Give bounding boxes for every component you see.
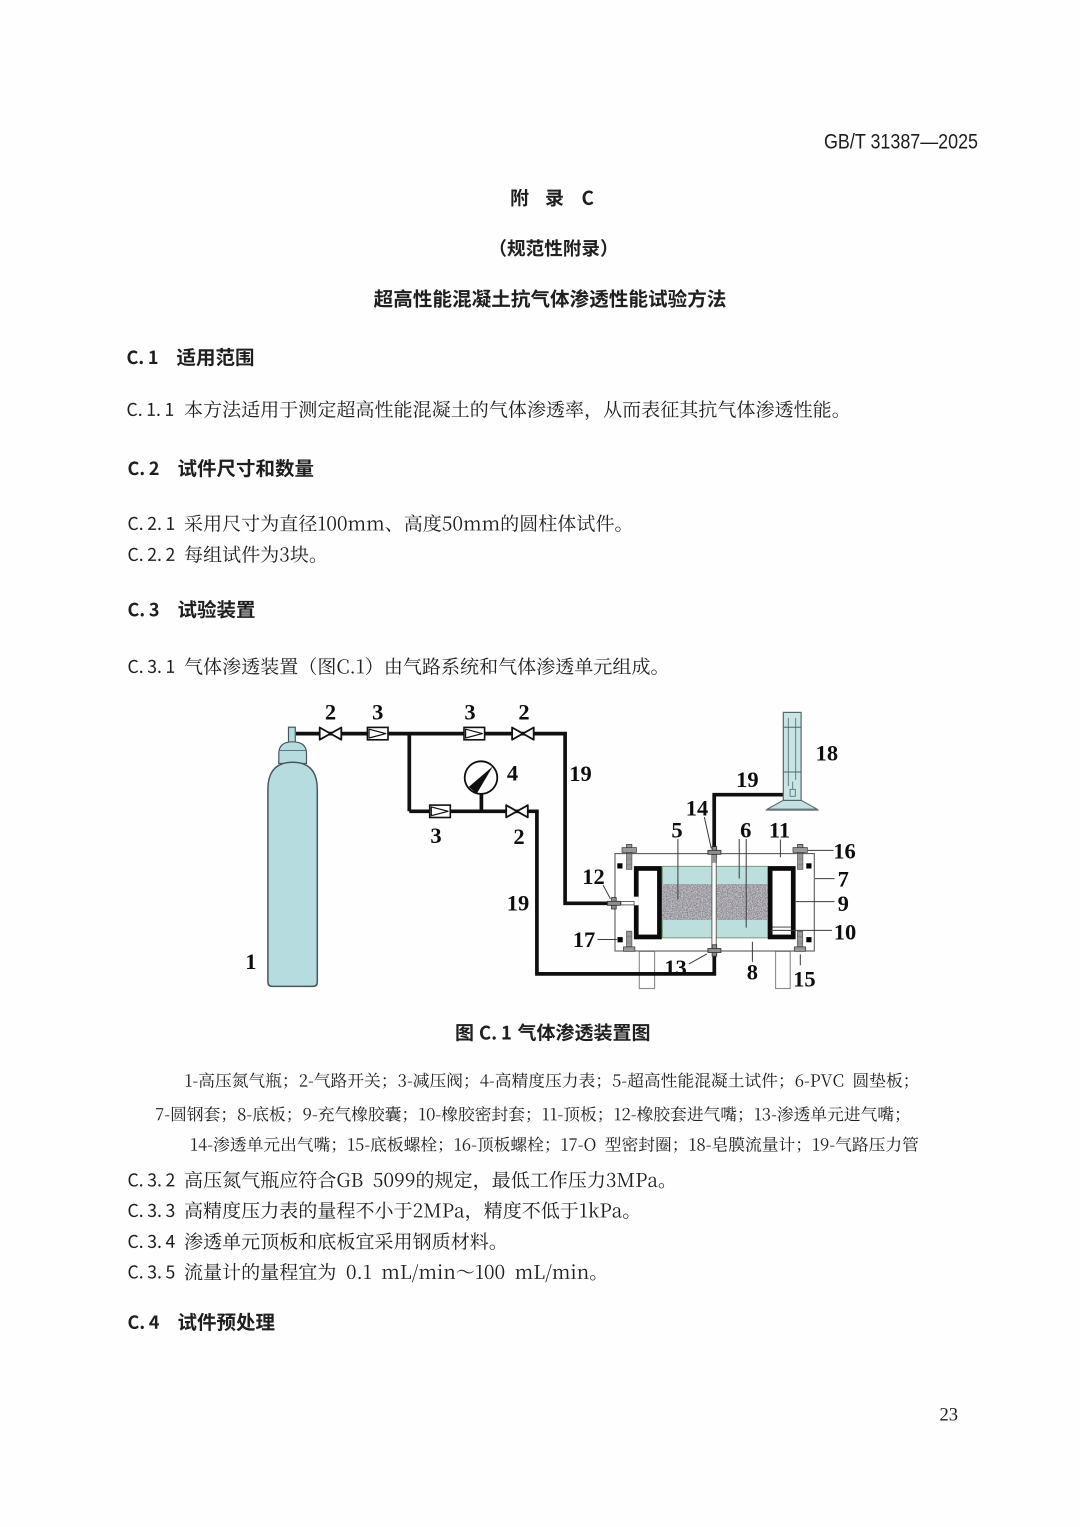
- svg-text:10: 10: [834, 920, 857, 945]
- svg-text:3: 3: [464, 700, 475, 725]
- svg-text:15: 15: [793, 967, 816, 992]
- svg-text:19: 19: [507, 891, 530, 916]
- svg-text:7: 7: [838, 867, 849, 892]
- svg-text:8: 8: [747, 960, 758, 985]
- svg-text:19: 19: [569, 761, 592, 786]
- svg-text:16: 16: [833, 839, 856, 864]
- svg-text:13: 13: [664, 955, 687, 980]
- svg-text:1: 1: [245, 949, 256, 974]
- svg-text:2: 2: [518, 700, 529, 725]
- svg-text:GB/T 31387—2025: GB/T 31387—2025: [824, 130, 978, 154]
- svg-text:6: 6: [740, 818, 751, 843]
- svg-text:4: 4: [507, 761, 518, 786]
- svg-text:3: 3: [430, 823, 441, 848]
- svg-text:3: 3: [372, 700, 383, 725]
- svg-text:9: 9: [838, 891, 849, 916]
- svg-text:2: 2: [325, 700, 336, 725]
- svg-text:12: 12: [582, 864, 605, 889]
- svg-text:18: 18: [816, 741, 839, 766]
- svg-text:5: 5: [671, 818, 682, 843]
- svg-text:19: 19: [736, 767, 759, 792]
- svg-text:11: 11: [769, 818, 790, 843]
- svg-text:2: 2: [513, 824, 524, 849]
- svg-text:17: 17: [573, 927, 596, 952]
- svg-text:14: 14: [686, 796, 709, 821]
- svg-text:23: 23: [939, 1406, 958, 1426]
